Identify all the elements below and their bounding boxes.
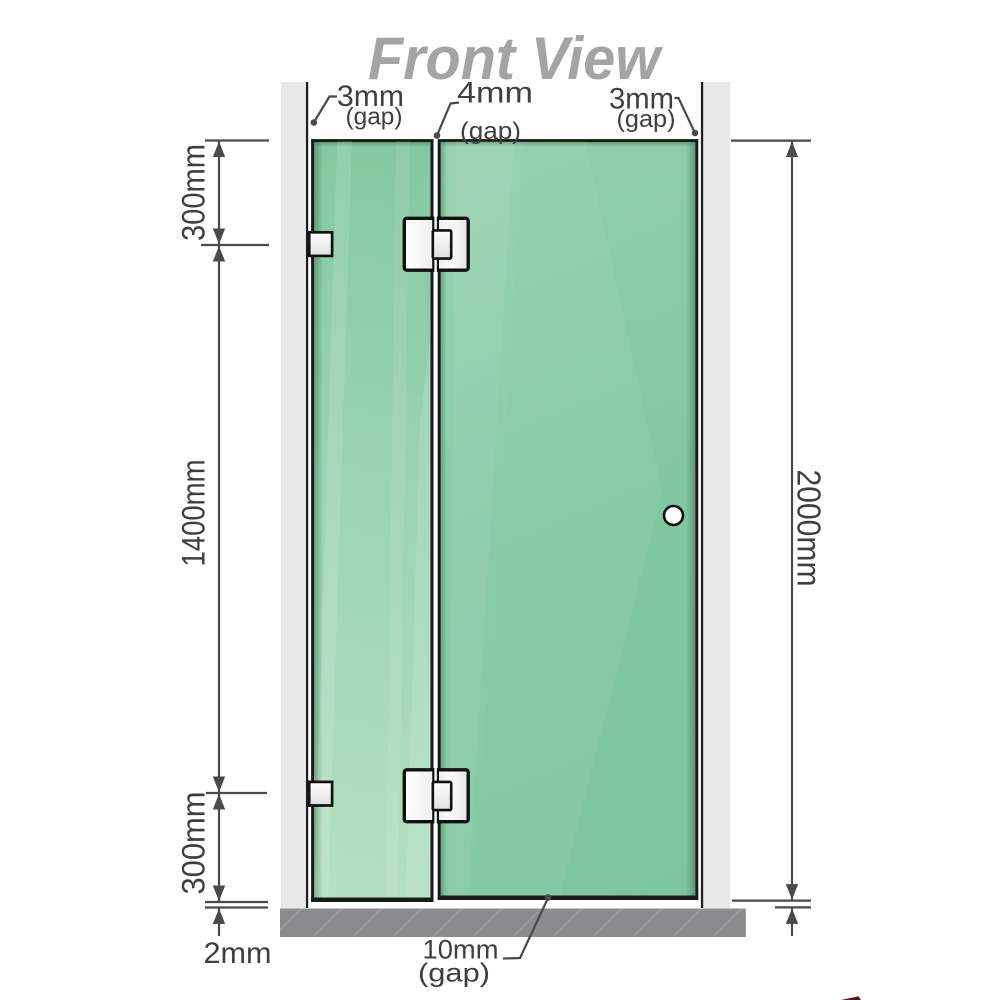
svg-text:1400mm: 1400mm	[176, 460, 212, 567]
svg-text:2000mm: 2000mm	[791, 470, 828, 587]
svg-text:(gap): (gap)	[418, 958, 490, 988]
svg-text:(gap): (gap)	[460, 118, 521, 145]
svg-text:4mm: 4mm	[457, 77, 533, 110]
svg-text:300mm: 300mm	[176, 144, 212, 241]
svg-text:(gap): (gap)	[617, 106, 676, 133]
svg-text:(gap): (gap)	[346, 104, 403, 131]
svg-text:300mm: 300mm	[176, 792, 212, 895]
svg-text:2mm: 2mm	[204, 937, 272, 970]
